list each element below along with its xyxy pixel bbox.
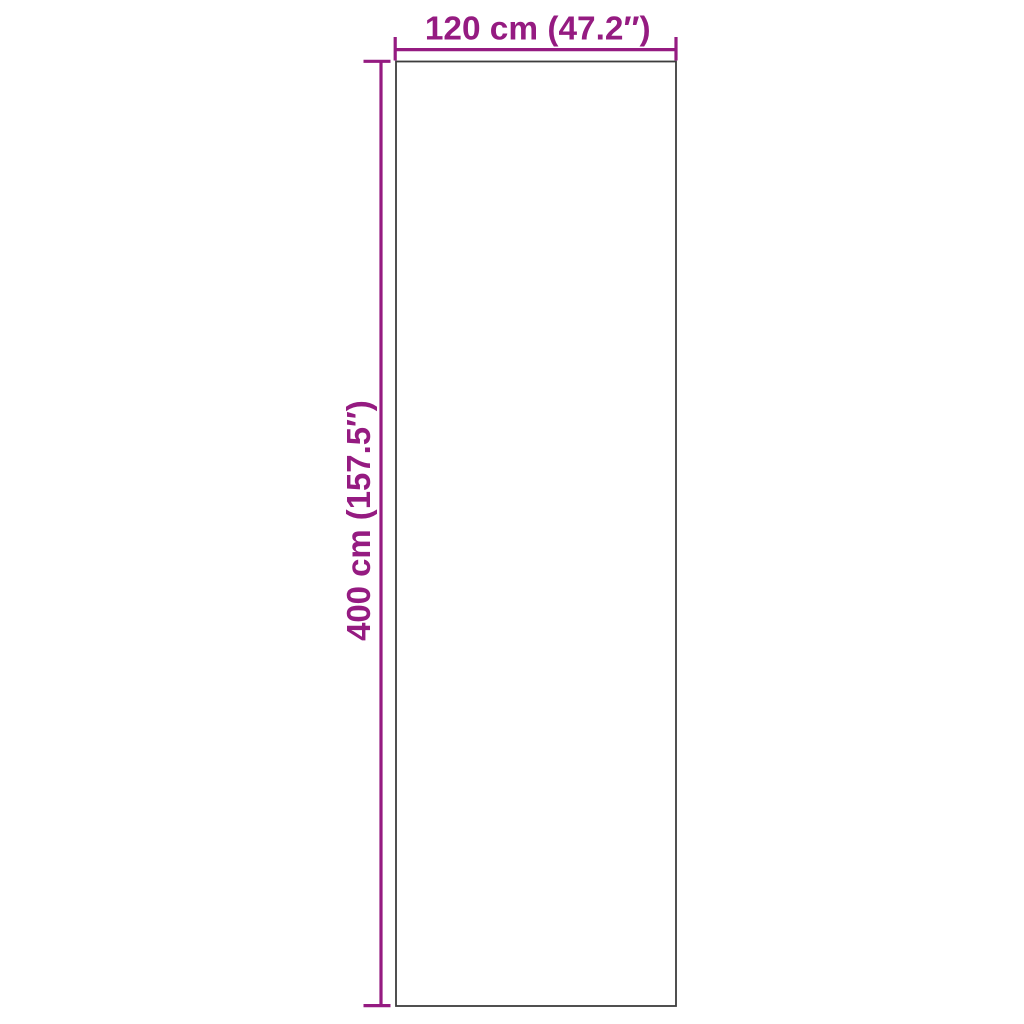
svg-text:120 cm (47.2″): 120 cm (47.2″) (425, 11, 651, 48)
svg-text:400 cm (157.5″): 400 cm (157.5″) (340, 400, 377, 641)
